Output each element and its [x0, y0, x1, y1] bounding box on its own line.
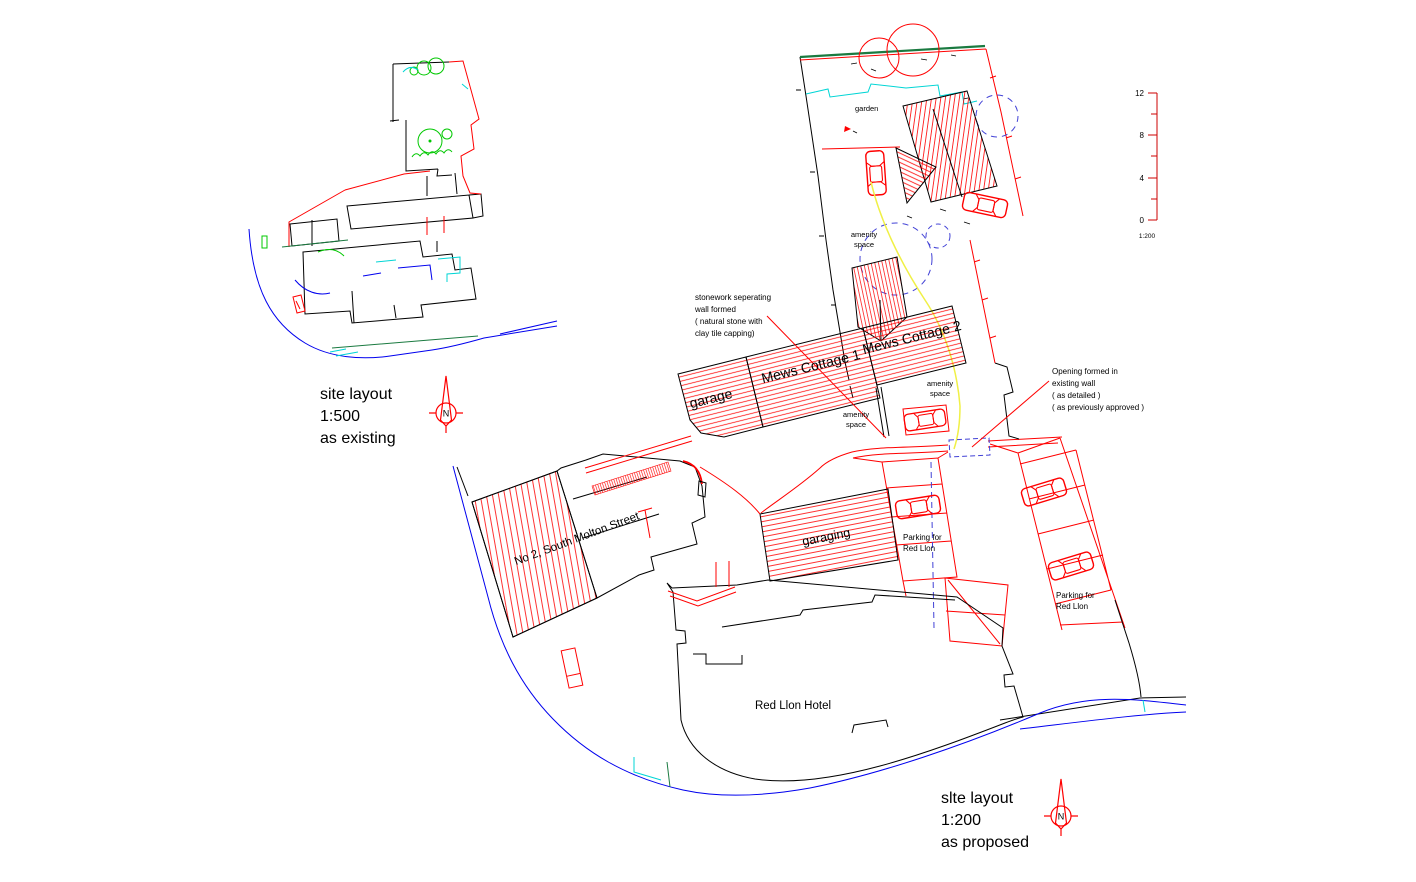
- existing-title-line3: as existing: [320, 430, 396, 447]
- existing-title-line2: 1:500: [320, 408, 360, 425]
- garden-north-wall: [800, 46, 985, 57]
- opening-line4: ( as previously approved ): [1052, 403, 1144, 412]
- parking-label: Red Llon: [903, 544, 935, 553]
- mews-strip-area: garage Mews Cottage 1 Mews Cottage 2 ame…: [678, 182, 1062, 513]
- garaging-building: garaging: [700, 467, 898, 581]
- opening-line3: ( as detailed ): [1052, 391, 1101, 400]
- scale-ratio-label: 1:200: [1139, 233, 1156, 240]
- amenity-label: amenity: [843, 410, 870, 419]
- stonework-annotation: stonework seperating wall formed ( natur…: [694, 293, 771, 338]
- existing-title-line1: site layout: [320, 386, 393, 403]
- proposed-site-plan: garden garage Mews Cottage 1 Mews Cottag…: [453, 24, 1186, 795]
- opening-line1: Opening formed in: [1052, 367, 1118, 376]
- parking-label: Red Llon: [1056, 602, 1088, 611]
- hotel-outline: [667, 580, 1023, 781]
- proposed-title-line1: slte layout: [941, 790, 1014, 807]
- amenity-label: space: [930, 389, 950, 398]
- car-icon: [962, 192, 1009, 219]
- red-lion-parking-east: Parking for Red Llon: [990, 438, 1186, 720]
- site-plan-sheet: N site layout 1:500 as existing: [0, 0, 1416, 882]
- stonework-line4: clay tile capping): [695, 329, 755, 338]
- scale-bar: 12 8 4 0 1:200: [1135, 89, 1157, 240]
- existing-title-block: site layout 1:500 as existing: [320, 376, 463, 447]
- scale-tick-12: 12: [1135, 89, 1144, 98]
- north-arrow-icon: [1044, 779, 1078, 836]
- hotel-red-partitions: [668, 561, 736, 606]
- north-arrow-icon: [429, 376, 463, 433]
- amenity-label: space: [854, 240, 874, 249]
- pavement-edge-black: [457, 467, 468, 496]
- stonework-line3: ( natural stone with: [695, 317, 763, 326]
- amenity-label: space: [846, 420, 866, 429]
- existing-wall-green: [282, 240, 478, 348]
- hotel-ne-red-rooms: [945, 578, 1008, 646]
- level-marker-icon: [844, 126, 851, 132]
- scale-tick-8: 8: [1140, 131, 1145, 140]
- proposed-title-block: slte layout 1:200 as proposed: [941, 779, 1078, 851]
- stonework-line1: stonework seperating: [695, 293, 771, 302]
- car-icon: [865, 150, 886, 195]
- red-door-rect: [561, 648, 583, 688]
- site-plan-drawing: N site layout 1:500 as existing: [0, 0, 1416, 882]
- proposed-title-line2: 1:200: [941, 812, 981, 829]
- existing-wall-zigzag: [995, 363, 1019, 439]
- parking-label: Parking for: [1056, 591, 1095, 600]
- garaging-approach-red: [700, 467, 760, 514]
- garden-label: garden: [855, 104, 878, 113]
- car-icon: [895, 495, 941, 520]
- existing-buildings-outline: [290, 62, 483, 323]
- red-lion-hotel-building: Red Llon Hotel: [667, 561, 1023, 781]
- stonework-line2: wall formed: [694, 305, 736, 314]
- existing-site-plan: [249, 58, 557, 358]
- proposed-tree-circle: [926, 224, 950, 248]
- proposed-tree-circle: [976, 95, 1018, 137]
- existing-boundary-red: [289, 61, 481, 313]
- proposed-title-line3: as proposed: [941, 834, 1029, 851]
- car-icon: [903, 409, 946, 432]
- garden-west-boundary: [796, 57, 845, 362]
- no2-south-molton-building: No 2, South Molton Street: [472, 436, 706, 688]
- kerb-detail-green: [667, 762, 670, 787]
- hotel-label: Red Llon Hotel: [755, 700, 831, 712]
- no2-red-band: [592, 462, 671, 495]
- opening-annotation: Opening formed in existing wall ( as det…: [972, 367, 1144, 447]
- car-icon: [1047, 551, 1094, 581]
- garden-plot: garden: [796, 24, 1023, 362]
- opening-line2: existing wall: [1052, 379, 1095, 388]
- scale-tick-4: 4: [1140, 174, 1145, 183]
- parking-label: Parking for: [903, 533, 942, 542]
- opening-leader-line: [972, 381, 1049, 447]
- existing-road-blue: [249, 229, 557, 358]
- hotel-inner-walls: [693, 595, 955, 733]
- amenity-label: amenity: [851, 230, 878, 239]
- scale-bar-line: [1148, 93, 1157, 220]
- amenity-label: amenity: [927, 379, 954, 388]
- east-boundary-red: [970, 240, 996, 363]
- scale-tick-0: 0: [1140, 216, 1145, 225]
